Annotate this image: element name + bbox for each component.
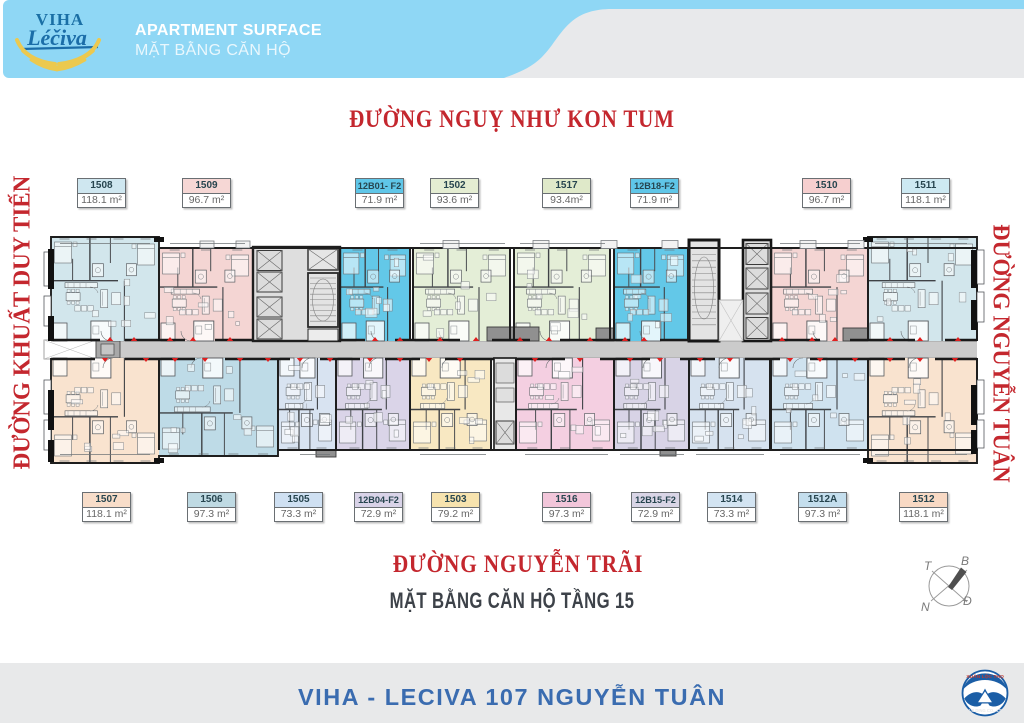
svg-text:T: T [924,559,933,573]
svg-text:B: B [961,554,969,568]
svg-text:Đ: Đ [963,594,972,608]
svg-text:N: N [921,600,930,614]
svg-text:BUILDING CO., LTD: BUILDING CO., LTD [966,708,1004,713]
